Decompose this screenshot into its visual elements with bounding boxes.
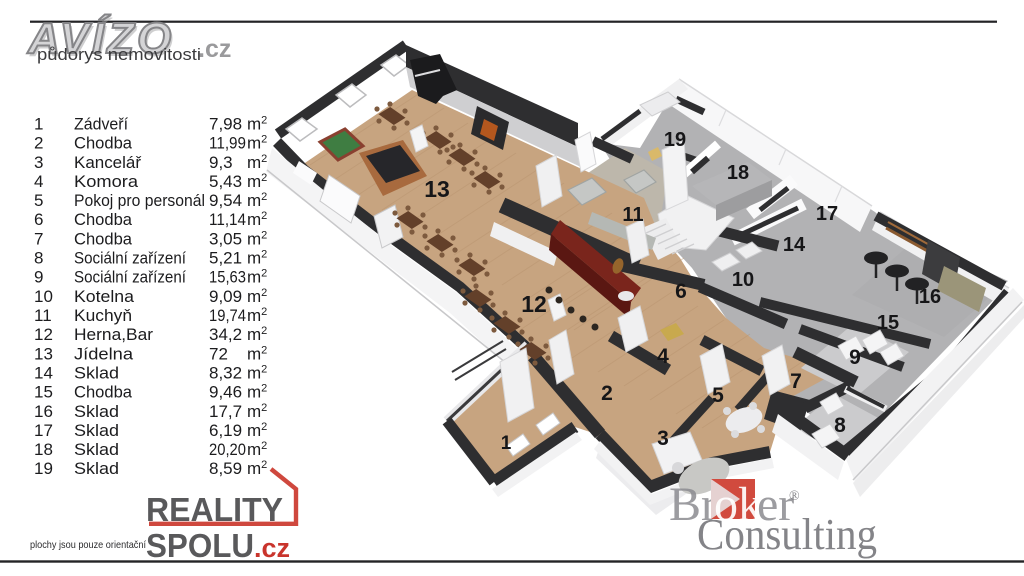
svg-text:18: 18 — [34, 440, 53, 459]
svg-text:Chodba: Chodba — [74, 229, 133, 248]
svg-text:13: 13 — [34, 344, 53, 363]
svg-text:11,99: 11,99 — [209, 134, 246, 153]
svg-text:7,98: 7,98 — [209, 115, 242, 134]
svg-text:Chodba: Chodba — [74, 383, 133, 402]
svg-text:3: 3 — [34, 153, 43, 172]
svg-text:72: 72 — [209, 344, 228, 363]
svg-text:Chodba: Chodba — [74, 134, 133, 153]
svg-text:7: 7 — [790, 370, 802, 393]
svg-text:19: 19 — [34, 459, 53, 478]
svg-text:1: 1 — [34, 115, 43, 134]
svg-text:3: 3 — [657, 427, 669, 450]
svg-text:14: 14 — [34, 363, 53, 382]
svg-text:9: 9 — [34, 268, 43, 287]
svg-text:9,09: 9,09 — [209, 287, 242, 306]
svg-text:Kotelna: Kotelna — [74, 287, 135, 306]
svg-text:.cz: .cz — [254, 533, 290, 563]
svg-text:8,32: 8,32 — [209, 363, 242, 382]
svg-text:10: 10 — [732, 269, 754, 291]
svg-text:15: 15 — [34, 383, 53, 402]
svg-text:15: 15 — [877, 312, 899, 334]
svg-text:12: 12 — [521, 291, 547, 317]
svg-text:Pokoj pro personál: Pokoj pro personál — [74, 191, 205, 210]
svg-text:Sklad: Sklad — [74, 440, 119, 459]
svg-text:půdorys nemovitosti: půdorys nemovitosti — [37, 45, 201, 64]
svg-text:Zádveří: Zádveří — [74, 115, 128, 134]
svg-text:4: 4 — [34, 172, 43, 191]
svg-text:17: 17 — [816, 203, 838, 225]
svg-text:3,05: 3,05 — [209, 229, 242, 248]
svg-text:plochy jsou pouze orientační: plochy jsou pouze orientační — [30, 539, 146, 551]
svg-text:10: 10 — [34, 287, 53, 306]
svg-text:8,59: 8,59 — [209, 459, 242, 478]
svg-text:Kancelář: Kancelář — [74, 153, 141, 172]
svg-text:18: 18 — [727, 162, 749, 184]
svg-text:8: 8 — [34, 249, 43, 268]
svg-text:16: 16 — [34, 402, 53, 421]
svg-text:5: 5 — [712, 384, 724, 407]
svg-text:11: 11 — [622, 204, 643, 226]
svg-text:9,3: 9,3 — [209, 153, 233, 172]
svg-text:1: 1 — [501, 433, 512, 454]
svg-text:17,7: 17,7 — [209, 402, 242, 421]
svg-text:Chodba: Chodba — [74, 210, 133, 229]
svg-text:Sociální zařízení: Sociální zařízení — [74, 268, 186, 287]
svg-text:2: 2 — [34, 134, 43, 153]
svg-text:8: 8 — [834, 414, 846, 437]
svg-text:34,2: 34,2 — [209, 325, 242, 344]
svg-text:9,46: 9,46 — [209, 383, 242, 402]
svg-text:6,19: 6,19 — [209, 421, 242, 440]
svg-text:20,20: 20,20 — [209, 440, 246, 459]
svg-text:SPOLU: SPOLU — [146, 527, 254, 564]
svg-text:7: 7 — [34, 229, 43, 248]
svg-text:14: 14 — [783, 234, 806, 256]
svg-text:9,54: 9,54 — [209, 191, 242, 210]
svg-text:Kuchyň: Kuchyň — [74, 306, 132, 325]
svg-text:16: 16 — [919, 286, 941, 308]
svg-text:Herna,Bar: Herna,Bar — [74, 325, 153, 344]
svg-text:Sklad: Sklad — [74, 402, 119, 421]
svg-text:11: 11 — [34, 306, 52, 325]
svg-text:Komora: Komora — [74, 172, 139, 191]
svg-text:2: 2 — [601, 382, 613, 405]
svg-text:Sklad: Sklad — [74, 459, 119, 478]
svg-text:Sklad: Sklad — [74, 421, 119, 440]
svg-text:5,43: 5,43 — [209, 172, 242, 191]
svg-text:Sociální zařízení: Sociální zařízení — [74, 249, 186, 268]
svg-text:19,74: 19,74 — [209, 306, 246, 325]
svg-text:19: 19 — [664, 129, 686, 151]
svg-text:4: 4 — [657, 345, 669, 368]
svg-text:®: ® — [789, 489, 800, 504]
svg-text:9: 9 — [849, 346, 861, 369]
svg-text:6: 6 — [34, 210, 43, 229]
svg-text:Sklad: Sklad — [74, 363, 119, 382]
svg-text:5: 5 — [34, 191, 43, 210]
svg-text:15,63: 15,63 — [209, 268, 246, 287]
svg-text:13: 13 — [424, 176, 450, 202]
svg-text:17: 17 — [34, 421, 53, 440]
svg-text:.cz: .cz — [198, 35, 231, 63]
svg-text:5,21: 5,21 — [209, 249, 242, 268]
svg-text:11,14: 11,14 — [209, 210, 246, 229]
svg-text:Consulting: Consulting — [697, 510, 877, 559]
svg-text:6: 6 — [675, 280, 687, 303]
svg-text:Jídelna: Jídelna — [74, 344, 134, 363]
svg-text:12: 12 — [34, 325, 53, 344]
